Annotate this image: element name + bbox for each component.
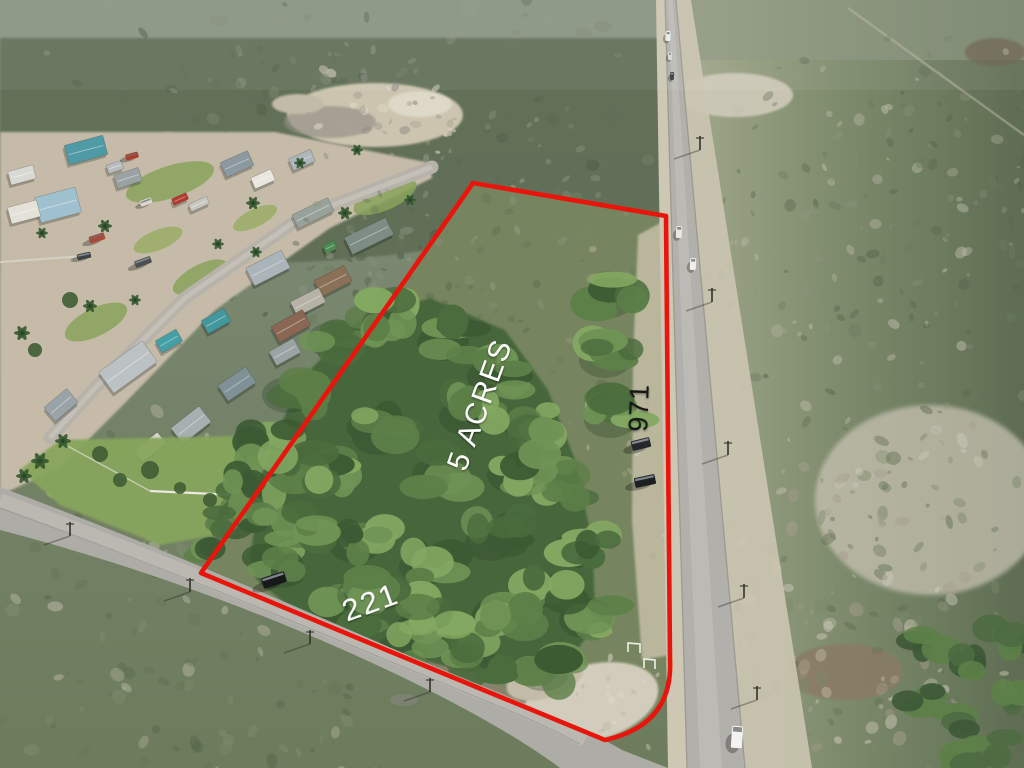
scrub-speckle	[449, 149, 452, 153]
tree-canopy-blob	[488, 655, 518, 683]
palm-center	[254, 250, 257, 253]
road-stain	[390, 694, 418, 706]
palm-center	[251, 201, 254, 204]
palm-center	[216, 242, 219, 245]
scrub-speckle	[895, 517, 910, 526]
tree-canopy-blob	[376, 415, 415, 437]
tree-canopy-blob	[892, 690, 924, 711]
tree-canopy-blob	[363, 526, 393, 543]
shrub	[62, 292, 78, 308]
tree-canopy-blob	[299, 331, 335, 352]
label-east-dimension: 971	[623, 383, 655, 432]
tree-canopy-blob	[437, 305, 468, 340]
tree-canopy-blob	[399, 619, 438, 635]
scrub-speckle	[586, 159, 600, 171]
palm-center	[88, 304, 91, 307]
tree-canopy-blob	[412, 637, 449, 658]
tree-canopy-blob	[480, 600, 511, 630]
tree-canopy-blob	[578, 302, 618, 321]
aerial-photo: 5 ACRES 971 221	[0, 0, 1024, 768]
tree-canopy-blob	[919, 683, 945, 700]
tree-canopy-blob	[588, 272, 637, 288]
tree-canopy-blob	[400, 475, 448, 499]
palm-center	[38, 459, 41, 462]
palm-center	[408, 198, 411, 201]
tree-canopy-blob	[203, 506, 236, 521]
tree-canopy-blob	[400, 538, 426, 567]
shrub	[203, 493, 217, 507]
tree-canopy-blob	[487, 516, 525, 538]
tree-canopy-blob	[296, 515, 338, 531]
palm-center	[22, 474, 25, 477]
tree-canopy-blob	[262, 546, 299, 571]
tree-canopy-blob	[305, 466, 334, 494]
tree-canopy-blob	[588, 595, 635, 615]
tree-canopy-blob	[346, 539, 369, 566]
tree-canopy-blob	[518, 438, 561, 469]
tree-canopy-blob	[341, 525, 363, 543]
tree-canopy-blob	[534, 645, 583, 674]
shrub	[113, 473, 127, 487]
tree-canopy-blob	[223, 469, 243, 494]
palm-center	[40, 231, 43, 234]
atmospheric-haze	[0, 0, 1024, 90]
tree-canopy-blob	[595, 531, 621, 549]
tree-canopy-blob	[264, 530, 301, 546]
palm-center	[103, 224, 106, 227]
tree-canopy-blob	[523, 564, 545, 590]
scrub-speckle	[452, 118, 457, 120]
scrub-speckle	[783, 584, 794, 592]
shrub	[28, 343, 42, 357]
vehicle-windshield	[677, 227, 681, 230]
tree-canopy-blob	[991, 679, 1017, 706]
palm-center	[355, 148, 358, 151]
palm-center	[343, 211, 346, 214]
aerial-photo-canvas: 5 ACRES 971 221	[0, 0, 1024, 768]
shrub	[141, 461, 159, 479]
tree-canopy-blob	[617, 286, 649, 314]
palm-center	[61, 439, 64, 442]
tree-canopy-blob	[467, 513, 489, 544]
tree-canopy-blob	[958, 661, 986, 681]
tree-canopy-blob	[432, 611, 475, 639]
tree-canopy-blob	[252, 508, 279, 526]
tree-canopy-blob	[548, 570, 584, 600]
palm-center	[20, 331, 23, 334]
shrub	[174, 482, 186, 494]
tree-canopy-blob	[575, 530, 600, 560]
palm-center	[298, 161, 301, 164]
vehicle-windshield	[733, 727, 742, 732]
shrub	[92, 446, 108, 462]
palm-center	[133, 298, 136, 301]
vehicle-windshield	[691, 259, 695, 262]
tree-canopy-blob	[351, 407, 378, 424]
tree-canopy-blob	[581, 339, 614, 356]
